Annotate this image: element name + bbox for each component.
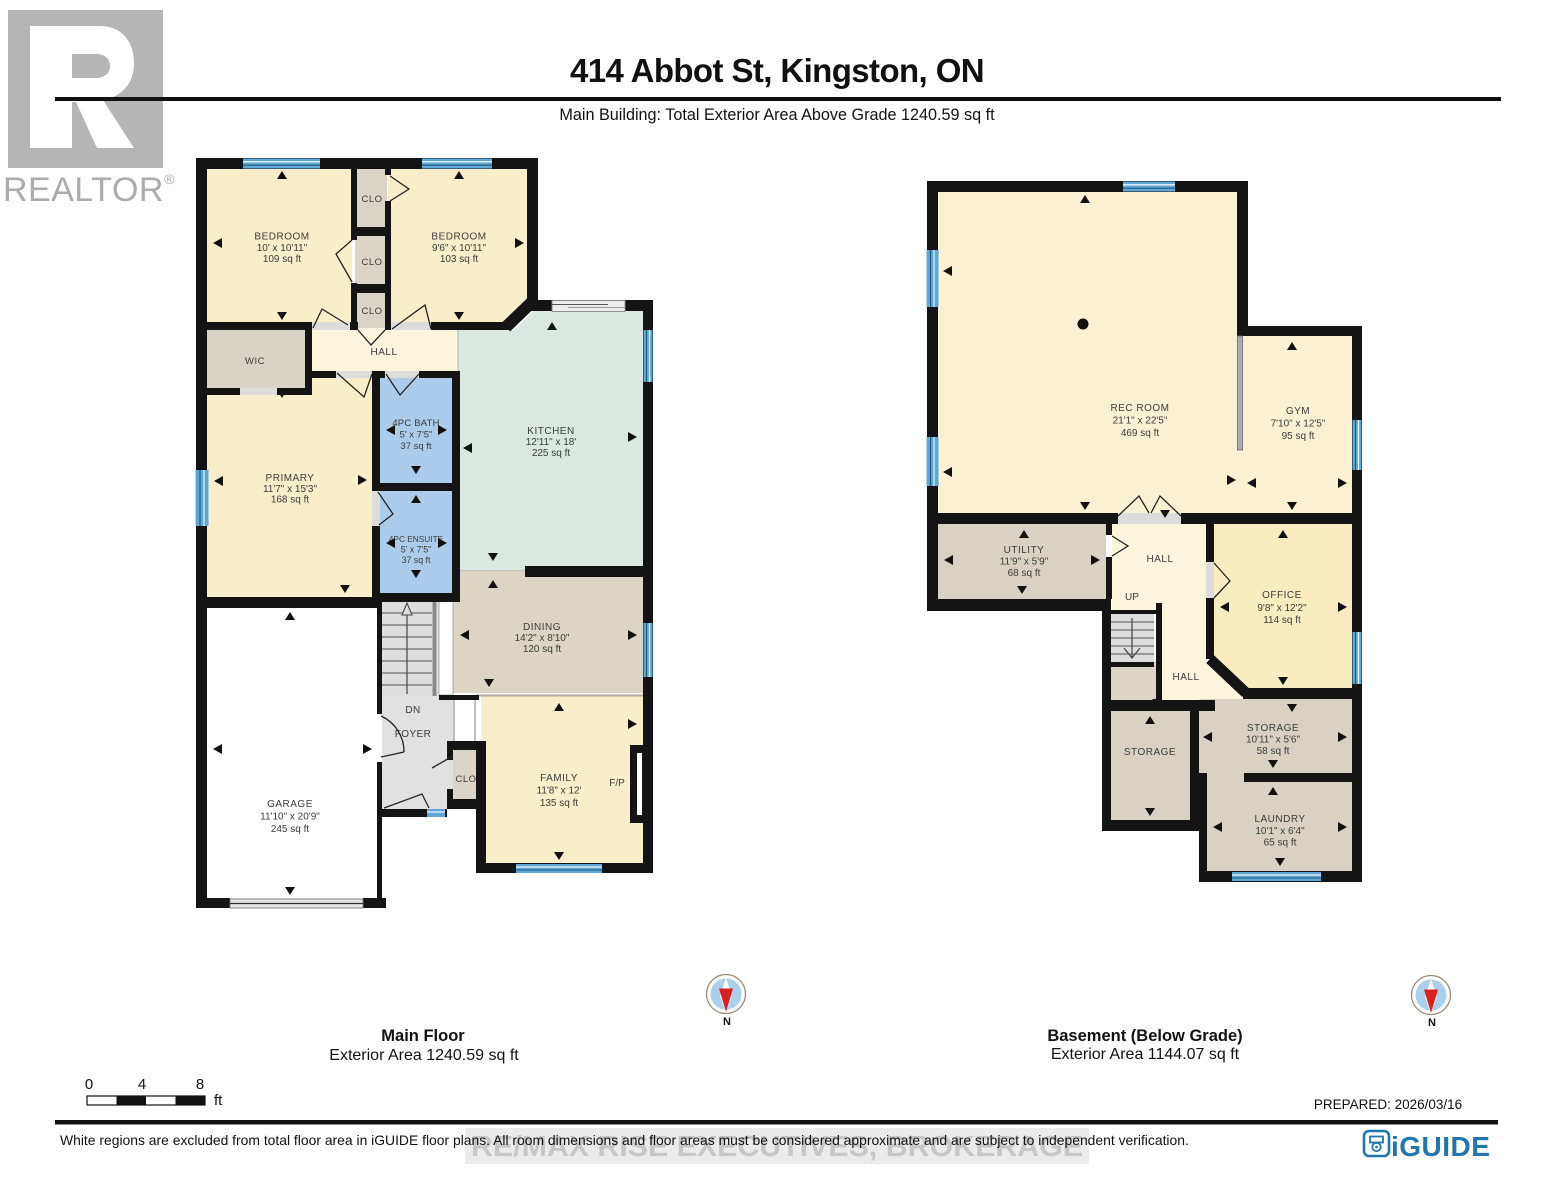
svg-text:®: ® [164,171,175,187]
svg-text:White regions are excluded fro: White regions are excluded from total fl… [60,1132,1189,1148]
svg-text:10'11" x 5'6": 10'11" x 5'6" [1246,735,1301,746]
svg-text:469 sq ft: 469 sq ft [1121,428,1160,439]
svg-text:21'1" x 22'5": 21'1" x 22'5" [1113,416,1168,427]
svg-text:168 sq ft: 168 sq ft [271,495,310,506]
svg-text:11'7" x 15'3": 11'7" x 15'3" [263,484,318,495]
svg-text:PREPARED: 2026/03/16: PREPARED: 2026/03/16 [1314,1097,1462,1112]
svg-text:FAMILY: FAMILY [540,773,578,784]
svg-text:DINING: DINING [523,622,561,633]
svg-text:12'11" x 18': 12'11" x 18' [526,437,577,448]
svg-text:Basement (Below Grade): Basement (Below Grade) [1047,1027,1242,1045]
svg-text:114 sq ft: 114 sq ft [1263,615,1301,626]
svg-text:11'10" x 20'9": 11'10" x 20'9" [260,812,320,823]
svg-text:LAUNDRY: LAUNDRY [1254,814,1305,825]
svg-text:KITCHEN: KITCHEN [527,426,574,437]
svg-text:135 sq ft: 135 sq ft [540,798,579,809]
svg-text:37 sq ft: 37 sq ft [400,441,432,452]
svg-text:HALL: HALL [370,347,397,358]
svg-text:58 sq ft: 58 sq ft [1257,746,1290,757]
svg-text:5' x 7'5": 5' x 7'5" [400,430,433,441]
svg-text:0: 0 [85,1076,93,1093]
svg-text:7'10" x 12'5": 7'10" x 12'5" [1271,419,1326,430]
svg-text:4PC ENSUITE: 4PC ENSUITE [389,534,444,544]
svg-text:10'1" x 6'4": 10'1" x 6'4" [1255,826,1305,837]
svg-text:Exterior Area 1240.59 sq ft: Exterior Area 1240.59 sq ft [329,1047,519,1064]
svg-text:N: N [1428,1017,1436,1029]
svg-text:10' x 10'11": 10' x 10'11" [257,243,308,254]
svg-text:HALL: HALL [1172,672,1199,683]
svg-text:iGUIDE: iGUIDE [1391,1131,1490,1162]
svg-text:WIC: WIC [245,356,265,367]
svg-text:9'8" x 12'2": 9'8" x 12'2" [1257,603,1307,614]
svg-text:CLO: CLO [361,257,382,268]
svg-text:BEDROOM: BEDROOM [254,232,309,243]
svg-text:PRIMARY: PRIMARY [266,473,315,484]
svg-text:STORAGE: STORAGE [1124,747,1176,758]
svg-text:OFFICE: OFFICE [1262,590,1302,601]
svg-text:REC ROOM: REC ROOM [1111,403,1170,414]
svg-text:CLO: CLO [455,774,476,785]
svg-text:120 sq ft: 120 sq ft [523,644,562,655]
svg-text:STORAGE: STORAGE [1247,723,1299,734]
svg-text:GYM: GYM [1286,406,1310,417]
svg-text:CLO: CLO [361,306,382,317]
svg-text:GARAGE: GARAGE [267,799,313,810]
svg-text:68 sq ft: 68 sq ft [1008,568,1041,579]
svg-text:UP: UP [1125,592,1139,603]
svg-text:UTILITY: UTILITY [1004,545,1045,556]
svg-text:65 sq ft: 65 sq ft [1264,838,1297,849]
svg-text:8: 8 [196,1076,204,1093]
svg-text:11'9" x 5'9": 11'9" x 5'9" [1000,557,1049,568]
svg-text:Main Floor: Main Floor [381,1027,465,1045]
svg-text:HALL: HALL [1146,554,1173,565]
svg-text:N: N [723,1016,731,1028]
svg-text:414 Abbot St, Kingston, ON: 414 Abbot St, Kingston, ON [570,52,984,89]
svg-text:DN: DN [405,705,420,716]
svg-text:BEDROOM: BEDROOM [431,232,486,243]
svg-text:4PC BATH: 4PC BATH [392,418,439,429]
svg-text:225 sq ft: 225 sq ft [532,448,571,459]
svg-text:95 sq ft: 95 sq ft [1282,431,1315,442]
svg-text:Main Building: Total Exterior: Main Building: Total Exterior Area Above… [559,106,995,124]
svg-text:11'8" x 12': 11'8" x 12' [537,786,582,797]
svg-text:ft: ft [214,1092,223,1109]
svg-text:CLO: CLO [361,194,382,205]
svg-text:109 sq ft: 109 sq ft [263,254,302,265]
svg-text:9'6" x 10'11": 9'6" x 10'11" [432,243,487,254]
svg-text:245 sq ft: 245 sq ft [271,824,310,835]
svg-text:37 sq ft: 37 sq ft [402,555,431,565]
svg-text:14'2" x 8'10": 14'2" x 8'10" [515,633,570,644]
svg-text:F/P: F/P [609,778,625,789]
svg-text:5' x 7'5": 5' x 7'5" [401,545,431,555]
svg-text:4: 4 [138,1076,146,1093]
svg-text:103 sq ft: 103 sq ft [440,254,479,265]
svg-text:REALTOR: REALTOR [3,171,164,209]
svg-text:Exterior Area 1144.07 sq ft: Exterior Area 1144.07 sq ft [1051,1046,1240,1063]
